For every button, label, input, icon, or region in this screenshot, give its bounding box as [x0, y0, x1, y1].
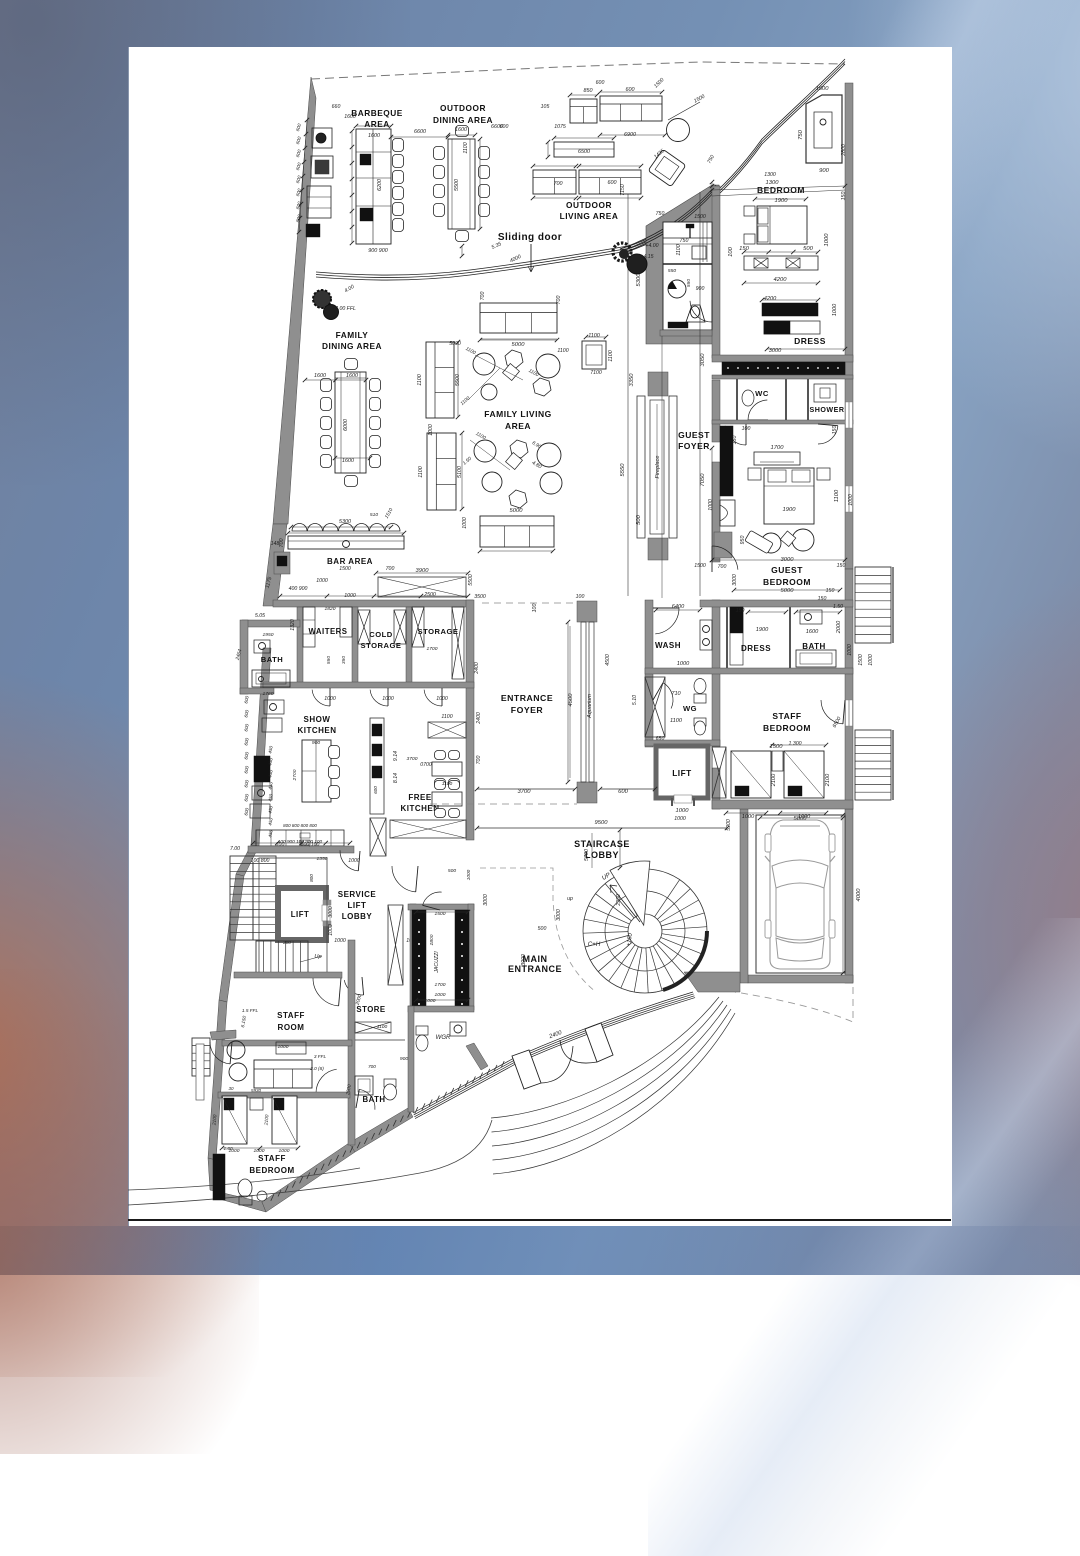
svg-text:750: 750 — [656, 211, 665, 217]
svg-text:600: 600 — [243, 709, 249, 718]
svg-text:1100: 1100 — [463, 142, 469, 153]
svg-text:1000: 1000 — [278, 1044, 289, 1050]
svg-text:2950: 2950 — [616, 894, 622, 907]
svg-text:1000: 1000 — [708, 499, 714, 511]
svg-text:1600: 1600 — [314, 373, 326, 379]
svg-text:LIFT: LIFT — [291, 910, 309, 919]
svg-text:Sliding door: Sliding door — [498, 232, 562, 243]
svg-text:1600: 1600 — [342, 458, 354, 464]
svg-text:LOBBY: LOBBY — [585, 850, 619, 860]
svg-text:UP: UP — [601, 871, 613, 882]
svg-text:5900: 5900 — [726, 819, 732, 831]
svg-text:STORAGE: STORAGE — [361, 641, 402, 650]
svg-text:7150: 7150 — [620, 184, 626, 196]
svg-text:1100: 1100 — [834, 489, 840, 502]
svg-text:1000: 1000 — [677, 661, 690, 667]
svg-text:450: 450 — [267, 817, 273, 826]
svg-text:850: 850 — [584, 88, 593, 94]
svg-text:700: 700 — [368, 1064, 376, 1069]
svg-text:660: 660 — [332, 104, 341, 110]
svg-text:700: 700 — [386, 566, 395, 572]
svg-text:1000: 1000 — [348, 858, 360, 864]
svg-text:Aquarium: Aquarium — [587, 694, 593, 719]
svg-text:400 900: 400 900 — [289, 586, 308, 592]
svg-text:2500: 2500 — [423, 592, 436, 598]
svg-text:3500: 3500 — [474, 594, 486, 600]
svg-text:2400: 2400 — [548, 1030, 564, 1041]
svg-text:700: 700 — [556, 296, 562, 305]
svg-text:550: 550 — [326, 656, 332, 664]
svg-text:600: 600 — [243, 723, 249, 732]
svg-text:600: 600 — [295, 136, 302, 145]
svg-text:1000: 1000 — [848, 494, 854, 506]
svg-text:600: 600 — [618, 789, 628, 795]
svg-text:100: 100 — [742, 426, 751, 432]
svg-text:1600: 1600 — [346, 373, 358, 379]
svg-text:+4.00 FFL: +4.00 FFL — [332, 306, 356, 312]
svg-text:600: 600 — [243, 737, 249, 746]
svg-text:6600: 6600 — [414, 129, 426, 135]
svg-text:3 FFL: 3 FFL — [314, 1054, 327, 1059]
svg-text:500: 500 — [448, 868, 456, 874]
svg-text:1075: 1075 — [554, 124, 566, 130]
svg-text:7100: 7100 — [590, 370, 602, 376]
svg-text:GUEST: GUEST — [678, 430, 710, 440]
svg-text:2100: 2100 — [211, 1114, 217, 1126]
svg-text:1000: 1000 — [824, 233, 830, 247]
svg-text:1500: 1500 — [694, 563, 706, 569]
svg-text:1100: 1100 — [377, 1024, 388, 1030]
svg-text:1700: 1700 — [427, 646, 438, 652]
svg-text:DINING AREA: DINING AREA — [433, 115, 493, 125]
svg-text:LIVING AREA: LIVING AREA — [560, 211, 619, 221]
svg-text:600: 600 — [596, 80, 605, 86]
svg-text:2800: 2800 — [841, 144, 847, 157]
svg-text:5930: 5930 — [251, 1088, 262, 1093]
svg-text:1100: 1100 — [588, 333, 600, 339]
svg-text:KITCHEN: KITCHEN — [400, 804, 439, 813]
svg-text:1600: 1600 — [368, 133, 380, 139]
svg-text:C+H: C+H — [588, 941, 601, 948]
svg-text:150: 150 — [841, 192, 847, 201]
svg-text:750: 750 — [798, 129, 804, 139]
svg-text:1000: 1000 — [316, 578, 328, 584]
svg-text:600: 600 — [295, 123, 302, 132]
svg-text:Fireplace: Fireplace — [655, 455, 661, 478]
svg-text:1.300: 1.300 — [789, 741, 802, 747]
svg-text:8.14: 8.14 — [393, 773, 399, 783]
svg-text:30: 30 — [228, 1086, 234, 1091]
svg-text:3000: 3000 — [328, 906, 334, 918]
svg-text:150: 150 — [818, 596, 827, 602]
svg-text:600: 600 — [243, 765, 249, 774]
svg-text:500: 500 — [538, 926, 547, 932]
svg-text:148: 148 — [271, 541, 280, 547]
svg-text:1500: 1500 — [653, 77, 665, 89]
svg-text:900 900: 900 900 — [368, 248, 388, 254]
svg-text:1.5 FFL: 1.5 FFL — [242, 1008, 259, 1013]
svg-text:ENTRANCE: ENTRANCE — [501, 693, 553, 703]
svg-text:BARBEQUE: BARBEQUE — [351, 108, 402, 118]
svg-text:7050: 7050 — [700, 473, 706, 487]
svg-text:6500: 6500 — [832, 716, 843, 729]
svg-text:1000: 1000 — [462, 517, 468, 529]
svg-text:3700: 3700 — [407, 756, 418, 762]
svg-text:WASH: WASH — [655, 641, 681, 650]
svg-text:450: 450 — [267, 781, 273, 790]
svg-text:150: 150 — [837, 563, 846, 569]
svg-text:2400: 2400 — [474, 662, 480, 675]
svg-text:6.90: 6.90 — [531, 440, 542, 450]
svg-text:700: 700 — [718, 564, 727, 570]
svg-text:750: 750 — [680, 238, 689, 244]
svg-text:1100: 1100 — [670, 718, 683, 724]
svg-text:450: 450 — [267, 757, 273, 766]
svg-text:550: 550 — [668, 268, 676, 274]
svg-text:BEDROOM: BEDROOM — [763, 577, 811, 587]
svg-text:1000: 1000 — [428, 424, 434, 436]
svg-text:600: 600 — [243, 695, 249, 704]
svg-text:1000: 1000 — [382, 696, 394, 702]
svg-text:450: 450 — [267, 805, 273, 814]
svg-text:1320: 1320 — [290, 619, 296, 631]
svg-text:1100: 1100 — [442, 781, 453, 787]
svg-text:1000: 1000 — [676, 808, 690, 814]
svg-text:5.05: 5.05 — [255, 613, 265, 619]
svg-text:4200: 4200 — [774, 277, 788, 283]
svg-text:150: 150 — [736, 608, 745, 614]
svg-text:900: 900 — [819, 168, 829, 174]
svg-text:510: 510 — [370, 512, 378, 518]
svg-text:450: 450 — [267, 829, 273, 838]
svg-text:SERVICE: SERVICE — [338, 890, 377, 899]
svg-text:6.150: 6.150 — [240, 1015, 247, 1028]
svg-text:500: 500 — [636, 514, 642, 524]
svg-text:+4.15: +4.15 — [640, 254, 653, 260]
svg-text:STAFF: STAFF — [258, 1154, 286, 1163]
svg-text:1.60: 1.60 — [223, 1146, 233, 1151]
svg-text:450: 450 — [267, 769, 273, 778]
svg-text:COLD: COLD — [369, 630, 393, 639]
svg-text:BAR AREA: BAR AREA — [327, 557, 373, 566]
svg-text:1100: 1100 — [418, 466, 424, 478]
svg-text:1950: 1950 — [263, 632, 274, 638]
svg-text:5.10: 5.10 — [632, 695, 638, 705]
svg-text:WG: WG — [683, 704, 697, 713]
svg-text:1900: 1900 — [783, 507, 797, 513]
svg-text:1760: 1760 — [263, 691, 274, 697]
svg-text:JACUZZI: JACUZZI — [434, 951, 440, 974]
svg-text:OUTDOOR: OUTDOOR — [566, 200, 612, 210]
svg-text:6200: 6200 — [377, 179, 383, 191]
svg-text:1800: 1800 — [429, 934, 435, 945]
svg-text:1000: 1000 — [847, 644, 853, 656]
svg-text:1000: 1000 — [466, 869, 471, 880]
svg-text:600: 600 — [295, 175, 302, 184]
svg-text:750: 750 — [706, 154, 716, 165]
svg-text:1000: 1000 — [324, 696, 336, 702]
svg-text:9500: 9500 — [595, 820, 609, 826]
svg-text:600: 600 — [243, 751, 249, 760]
svg-text:1900: 1900 — [756, 627, 769, 633]
svg-text:3000: 3000 — [556, 909, 562, 921]
svg-text:1500: 1500 — [858, 654, 864, 666]
svg-text:1500: 1500 — [694, 214, 706, 220]
svg-text:600: 600 — [500, 124, 509, 130]
svg-text:DINING AREA: DINING AREA — [322, 341, 382, 351]
svg-text:5000: 5000 — [781, 588, 795, 594]
svg-text:3700: 3700 — [518, 789, 532, 795]
svg-text:1000: 1000 — [868, 654, 874, 666]
svg-text:STAIRCASE: STAIRCASE — [574, 839, 630, 849]
svg-text:1000: 1000 — [436, 696, 448, 702]
svg-text:3050: 3050 — [700, 353, 706, 367]
svg-text:2400: 2400 — [476, 712, 482, 725]
svg-text:800: 800 — [309, 874, 314, 882]
svg-text:0700: 0700 — [420, 762, 432, 768]
svg-text:550: 550 — [686, 279, 692, 287]
svg-text:BEDROOM: BEDROOM — [763, 723, 811, 733]
svg-text:3000: 3000 — [521, 954, 527, 966]
svg-text:600: 600 — [243, 793, 249, 802]
svg-text:150: 150 — [832, 426, 838, 435]
svg-text:4500: 4500 — [605, 654, 611, 666]
svg-text:1100: 1100 — [464, 346, 476, 356]
svg-text:4.80: 4.80 — [531, 460, 543, 470]
svg-text:2100: 2100 — [771, 773, 777, 787]
svg-text:FOYER: FOYER — [511, 705, 544, 715]
svg-text:5300: 5300 — [339, 519, 351, 525]
svg-text:1350: 1350 — [317, 856, 328, 862]
svg-text:KITCHEN: KITCHEN — [297, 726, 336, 735]
svg-text:LIFT: LIFT — [348, 901, 367, 910]
svg-text:700: 700 — [554, 181, 563, 187]
svg-text:1000: 1000 — [435, 992, 446, 998]
svg-text:3000: 3000 — [732, 574, 738, 586]
svg-text:1000: 1000 — [328, 924, 334, 936]
svg-text:1600: 1600 — [344, 114, 356, 120]
svg-text:5800: 5800 — [794, 816, 808, 822]
svg-text:900: 900 — [696, 286, 705, 292]
svg-text:DRESS: DRESS — [741, 644, 771, 653]
svg-text:WC: WC — [755, 389, 769, 398]
svg-text:1.50: 1.50 — [833, 604, 843, 610]
svg-text:650: 650 — [656, 736, 665, 742]
svg-text:600: 600 — [295, 162, 302, 171]
svg-text:4000: 4000 — [856, 888, 862, 902]
svg-text:1510: 1510 — [384, 507, 395, 520]
svg-text:100: 100 — [728, 246, 734, 256]
svg-text:FOYER: FOYER — [678, 441, 710, 451]
svg-text:2100: 2100 — [825, 773, 831, 787]
svg-text:1100: 1100 — [676, 244, 682, 255]
svg-text:BEDROOM: BEDROOM — [249, 1166, 294, 1175]
svg-text:1000: 1000 — [279, 1148, 290, 1154]
svg-text:WGR: WGR — [436, 1035, 451, 1041]
svg-text:2100: 2100 — [263, 1114, 269, 1126]
svg-text:LIFT: LIFT — [672, 768, 692, 778]
svg-text:OUTDOOR: OUTDOOR — [440, 103, 486, 113]
svg-text:LOBBY: LOBBY — [342, 912, 373, 921]
svg-text:700: 700 — [279, 539, 285, 548]
svg-text:5700: 5700 — [584, 849, 590, 861]
svg-text:1100: 1100 — [417, 374, 423, 386]
svg-text:1100: 1100 — [459, 395, 471, 407]
svg-text:500: 500 — [803, 246, 813, 252]
svg-text:950: 950 — [740, 536, 746, 545]
svg-text:700: 700 — [480, 292, 486, 301]
svg-text:1.50: 1.50 — [462, 456, 473, 467]
svg-text:1000: 1000 — [742, 814, 755, 820]
svg-text:+150: +150 — [626, 932, 634, 947]
svg-text:600: 600 — [243, 807, 249, 816]
svg-text:DRESS: DRESS — [794, 336, 826, 346]
svg-text:6400: 6400 — [672, 604, 685, 610]
svg-text:up: up — [567, 896, 573, 902]
svg-text:WAITERS: WAITERS — [308, 627, 347, 636]
svg-text:350: 350 — [341, 656, 347, 664]
svg-text:ENTRANCE: ENTRANCE — [508, 964, 562, 974]
svg-text:5000: 5000 — [512, 342, 526, 348]
svg-text:1000: 1000 — [334, 938, 346, 944]
svg-text:1500: 1500 — [693, 94, 706, 105]
svg-text:SHOWER: SHOWER — [810, 406, 845, 414]
svg-text:600: 600 — [373, 786, 378, 794]
svg-text:6000: 6000 — [343, 419, 349, 431]
svg-text:1300: 1300 — [764, 172, 776, 178]
svg-text:5000: 5000 — [510, 508, 524, 514]
svg-text:4200: 4200 — [764, 296, 777, 302]
svg-text:6500: 6500 — [578, 149, 590, 155]
svg-text:900: 900 — [312, 740, 320, 746]
svg-text:STORE: STORE — [356, 1005, 385, 1014]
svg-text:1820: 1820 — [325, 606, 336, 612]
svg-text:150: 150 — [826, 588, 835, 594]
svg-text:100: 100 — [576, 594, 585, 600]
svg-text:SHOW: SHOW — [304, 715, 331, 724]
svg-text:FAMILY LIVING: FAMILY LIVING — [484, 409, 551, 419]
svg-text:600: 600 — [608, 180, 617, 186]
svg-text:900: 900 — [400, 1056, 408, 1062]
svg-text:2.0 (8): 2.0 (8) — [309, 1066, 324, 1071]
svg-text:1000: 1000 — [425, 998, 436, 1004]
svg-text:5500: 5500 — [454, 179, 460, 191]
svg-text:800 800 800 800: 800 800 800 800 — [283, 823, 317, 828]
svg-text:+4.00: +4.00 — [645, 243, 658, 249]
svg-text:5300: 5300 — [636, 273, 642, 287]
svg-text:1700: 1700 — [771, 445, 785, 451]
svg-text:1100: 1100 — [557, 348, 568, 354]
svg-text:STAFF: STAFF — [277, 1011, 305, 1020]
svg-text:ROOM: ROOM — [278, 1023, 305, 1032]
svg-text:3000: 3000 — [483, 894, 489, 906]
svg-text:BEDROOM: BEDROOM — [757, 185, 805, 195]
svg-text:200: 200 — [282, 940, 291, 945]
svg-text:4.00: 4.00 — [344, 284, 356, 294]
svg-text:FAMILY: FAMILY — [336, 330, 369, 340]
svg-text:5000: 5000 — [449, 341, 461, 347]
svg-text:4500: 4500 — [568, 693, 574, 707]
svg-text:700: 700 — [476, 756, 482, 765]
svg-text:1000: 1000 — [832, 303, 838, 316]
svg-text:BATH: BATH — [261, 655, 284, 664]
svg-text:450: 450 — [267, 745, 273, 754]
svg-text:AREA: AREA — [505, 421, 531, 431]
svg-text:3350: 3350 — [629, 373, 635, 387]
svg-text:1500: 1500 — [339, 566, 351, 572]
svg-text:600: 600 — [295, 149, 302, 158]
svg-text:1600: 1600 — [806, 629, 819, 635]
svg-text:105: 105 — [541, 104, 550, 110]
svg-text:4000: 4000 — [509, 254, 522, 264]
svg-text:1500: 1500 — [816, 86, 830, 92]
svg-text:2000: 2000 — [836, 620, 842, 634]
svg-text:2700: 2700 — [292, 769, 298, 781]
svg-text:FREE: FREE — [408, 793, 432, 802]
svg-text:100: 100 — [532, 604, 538, 613]
svg-text:7.00: 7.00 — [230, 846, 240, 852]
svg-text:100 800: 100 800 — [251, 858, 270, 864]
svg-text:1100: 1100 — [441, 714, 452, 720]
svg-text:5550: 5550 — [620, 463, 626, 477]
svg-text:9.14: 9.14 — [393, 751, 399, 761]
svg-text:150: 150 — [732, 436, 738, 445]
svg-text:GUEST: GUEST — [771, 565, 803, 575]
svg-text:5500: 5500 — [468, 574, 474, 586]
svg-text:1700: 1700 — [435, 982, 446, 988]
svg-text:STAFF: STAFF — [772, 711, 801, 721]
svg-text:1100: 1100 — [608, 350, 614, 362]
svg-text:AREA: AREA — [364, 119, 390, 129]
svg-text:450: 450 — [267, 793, 273, 802]
svg-text:600: 600 — [243, 779, 249, 788]
svg-text:1000: 1000 — [674, 816, 686, 822]
svg-text:1600: 1600 — [455, 127, 467, 133]
svg-text:1100: 1100 — [527, 368, 539, 378]
